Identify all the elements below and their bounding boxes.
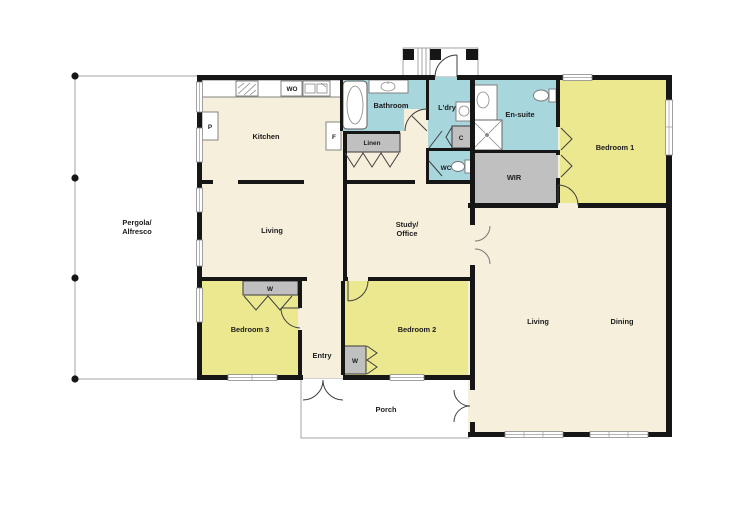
pergola-post [71, 72, 78, 79]
label-linen: Linen [363, 140, 380, 147]
window [197, 288, 203, 322]
label-laundry: L'dry [438, 103, 457, 112]
window [666, 100, 673, 155]
pergola-post [71, 375, 78, 382]
pergola-post [71, 274, 78, 281]
laundry-trough-icon [456, 102, 472, 121]
label-bedroom2: Bedroom 2 [398, 325, 437, 334]
label-pantry: P [208, 124, 213, 131]
porch-post [430, 49, 441, 60]
bathtub-icon [343, 81, 367, 129]
window [197, 240, 203, 266]
porch-post [403, 49, 414, 60]
cooktop-icon [236, 81, 258, 96]
pergola-post [71, 174, 78, 181]
label-fridge: F [332, 134, 336, 141]
floorplan-page: Pergola/ Alfresco Kitchen WO P F Bathroo… [0, 0, 750, 509]
window [505, 432, 563, 438]
label-robe-bed3: W [267, 286, 274, 293]
label-porch: Porch [376, 405, 397, 414]
ensuite-toilet-icon [534, 89, 557, 102]
label-wc: WC [441, 165, 452, 172]
label-living-rear: Living [527, 317, 549, 326]
label-dining: Dining [611, 317, 634, 326]
label-cupboard: C [459, 135, 464, 142]
label-wall-oven: WO [286, 86, 297, 93]
label-kitchen: Kitchen [252, 132, 280, 141]
label-pergola-line1: Pergola/ [122, 218, 151, 227]
kitchen-sink-icon [303, 81, 330, 96]
window [197, 188, 203, 212]
label-study-line2: Office [397, 229, 418, 238]
bathroom-vanity-icon [369, 80, 408, 93]
window [228, 375, 277, 381]
label-study-line1: Study/ [396, 220, 419, 229]
label-bedroom3: Bedroom 3 [231, 325, 270, 334]
shower-icon [472, 120, 502, 150]
window [197, 128, 203, 162]
window [563, 75, 592, 81]
label-bedroom1: Bedroom 1 [596, 143, 635, 152]
window [590, 432, 648, 438]
label-wir: WIR [507, 173, 522, 182]
label-entry: Entry [313, 351, 333, 360]
label-robe-bed2: W [352, 358, 359, 365]
window [390, 375, 424, 381]
kitchen-bench [202, 80, 341, 97]
french-doors [454, 390, 470, 422]
label-living-front: Living [261, 226, 283, 235]
wc-toilet-icon [452, 160, 472, 173]
window [197, 82, 203, 112]
porch-post [466, 49, 478, 60]
label-ensuite: En-suite [505, 110, 534, 119]
label-pergola-line2: Alfresco [122, 227, 152, 236]
front-double-door [303, 380, 343, 400]
floorplan-canvas: Pergola/ Alfresco Kitchen WO P F Bathroo… [0, 0, 750, 509]
room-bedroom-1 [560, 80, 666, 203]
label-bathroom: Bathroom [374, 101, 409, 110]
